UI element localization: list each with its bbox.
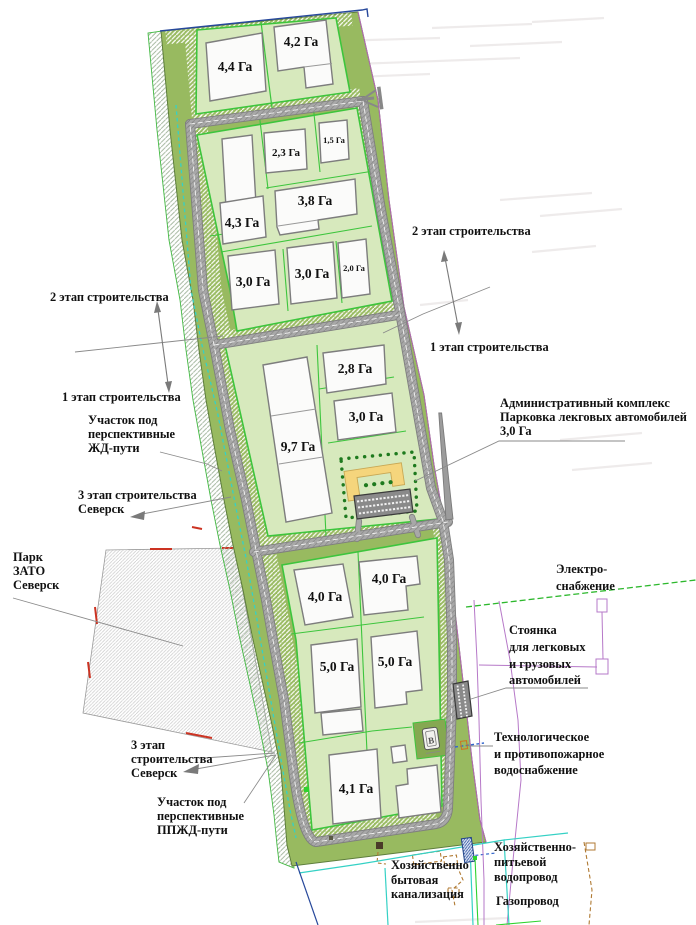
svg-text:Электро-: Электро- <box>556 562 607 576</box>
svg-text:Северск: Северск <box>131 766 178 780</box>
svg-text:Административный комплекс: Административный комплекс <box>500 396 670 410</box>
svg-text:ППЖД-пути: ППЖД-пути <box>157 823 228 837</box>
svg-text:Газопровод: Газопровод <box>496 894 559 908</box>
svg-text:3,0 Га: 3,0 Га <box>349 409 384 424</box>
svg-text:бытовая: бытовая <box>391 873 439 887</box>
svg-text:питьевой: питьевой <box>494 855 546 869</box>
svg-text:2,3 Га: 2,3 Га <box>272 147 301 159</box>
svg-text:водопровод: водопровод <box>494 870 558 884</box>
svg-text:3,8 Га: 3,8 Га <box>298 193 333 208</box>
svg-text:4,0 Га: 4,0 Га <box>372 571 407 586</box>
svg-text:4,0 Га: 4,0 Га <box>308 589 343 604</box>
svg-text:Хозяйственно-: Хозяйственно- <box>494 840 576 854</box>
svg-text:5,0 Га: 5,0 Га <box>320 659 355 674</box>
svg-text:4,2 Га: 4,2 Га <box>284 34 319 49</box>
svg-text:1,5 Га: 1,5 Га <box>323 135 345 145</box>
svg-text:для легковых: для легковых <box>509 640 586 654</box>
svg-text:ЖД-пути: ЖД-пути <box>88 441 139 455</box>
svg-text:Хозяйственно: Хозяйственно <box>391 858 469 872</box>
svg-text:канализация: канализация <box>391 887 464 901</box>
svg-text:Парковка лекговых автомобилей: Парковка лекговых автомобилей <box>500 410 687 424</box>
svg-text:перспективные: перспективные <box>88 427 176 441</box>
svg-text:и грузовых: и грузовых <box>509 657 572 671</box>
svg-text:3,0 Га: 3,0 Га <box>500 424 532 438</box>
svg-text:3 этап: 3 этап <box>131 738 165 752</box>
svg-text:Северск: Северск <box>13 578 60 592</box>
svg-text:4,4 Га: 4,4 Га <box>218 59 253 74</box>
svg-text:водоснабжение: водоснабжение <box>494 763 578 777</box>
svg-text:3 этап строительства: 3 этап строительства <box>78 488 197 502</box>
svg-text:2,8 Га: 2,8 Га <box>338 361 373 376</box>
svg-text:снабжение: снабжение <box>556 579 615 593</box>
svg-text:4,3 Га: 4,3 Га <box>225 215 260 230</box>
svg-text:5,0 Га: 5,0 Га <box>378 654 413 669</box>
svg-text:1 этап строительства: 1 этап строительства <box>62 390 181 404</box>
svg-text:Стоянка: Стоянка <box>509 623 557 637</box>
svg-text:1 этап строительства: 1 этап строительства <box>430 340 549 354</box>
svg-text:строительства: строительства <box>131 752 213 766</box>
svg-text:Участок под: Участок под <box>88 413 158 427</box>
svg-text:Технологическое: Технологическое <box>494 730 590 744</box>
svg-text:2 этап строительства: 2 этап строительства <box>50 290 169 304</box>
svg-text:3,0 Га: 3,0 Га <box>295 266 330 281</box>
svg-text:3,0 Га: 3,0 Га <box>236 274 271 289</box>
svg-text:ЗАТО: ЗАТО <box>13 564 45 578</box>
svg-text:Парк: Парк <box>13 550 44 564</box>
svg-text:перспективные: перспективные <box>157 809 245 823</box>
svg-text:9,7 Га: 9,7 Га <box>281 439 316 454</box>
svg-text:Участок под: Участок под <box>157 795 227 809</box>
svg-text:2,0 Га: 2,0 Га <box>343 263 365 273</box>
svg-text:Северск: Северск <box>78 502 125 516</box>
svg-text:и противопожарное: и противопожарное <box>494 747 605 761</box>
svg-text:автомобилей: автомобилей <box>509 673 581 687</box>
svg-text:2 этап строительства: 2 этап строительства <box>412 224 531 238</box>
svg-text:4,1 Га: 4,1 Га <box>339 781 374 796</box>
